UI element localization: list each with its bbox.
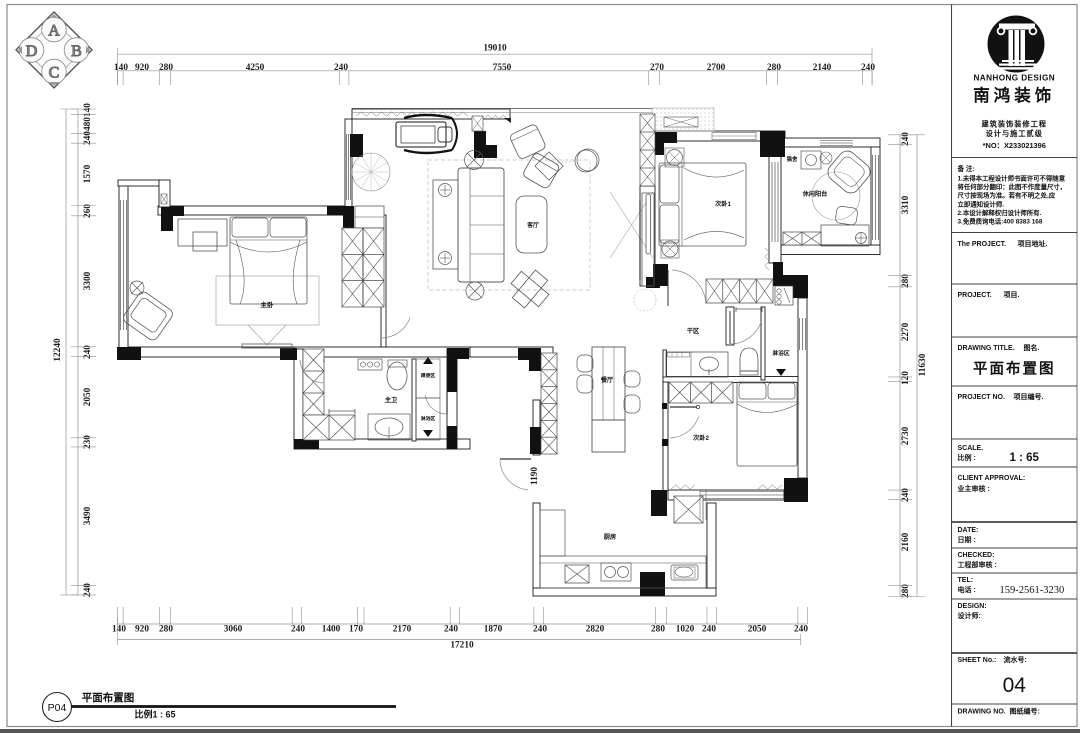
- svg-text:280: 280: [651, 625, 665, 635]
- svg-text:2820: 2820: [586, 625, 605, 635]
- svg-text:The PROJECT.: The PROJECT.: [958, 241, 1007, 248]
- svg-text:240: 240: [794, 625, 808, 635]
- svg-text:240: 240: [861, 63, 875, 73]
- svg-text:120: 120: [901, 371, 911, 385]
- svg-text:工程部审核 :: 工程部审核 :: [958, 560, 997, 569]
- svg-text:项目.: 项目.: [1004, 290, 1020, 299]
- svg-text:280: 280: [159, 63, 173, 73]
- svg-text:7550: 7550: [493, 63, 512, 73]
- svg-text:流水号:: 流水号:: [1004, 655, 1027, 664]
- svg-text:比例1 : 65: 比例1 : 65: [134, 709, 175, 720]
- svg-text:厨房: 厨房: [604, 533, 616, 541]
- svg-text:猫舍: 猫舍: [786, 155, 798, 163]
- svg-text:电话 :: 电话 :: [958, 585, 976, 594]
- svg-text:280: 280: [159, 625, 173, 635]
- svg-text:淋浴区: 淋浴区: [772, 349, 790, 357]
- svg-text:2.本设计解释权归设计师所有.: 2.本设计解释权归设计师所有.: [958, 208, 1042, 217]
- svg-text:比例 :: 比例 :: [958, 453, 976, 462]
- svg-text:1020: 1020: [676, 625, 695, 635]
- svg-text:11630: 11630: [918, 353, 928, 376]
- svg-text:159-2561-3230: 159-2561-3230: [1000, 585, 1065, 596]
- svg-text:240: 240: [444, 625, 458, 635]
- svg-text:客厅: 客厅: [526, 221, 539, 229]
- svg-text:次卧1: 次卧1: [715, 200, 731, 208]
- svg-text:业主审核 :: 业主审核 :: [958, 484, 990, 493]
- svg-text:PROJECT.: PROJECT.: [958, 292, 992, 299]
- svg-text:17210: 17210: [450, 641, 474, 651]
- svg-text:270: 270: [650, 63, 664, 73]
- svg-text:240: 240: [702, 625, 716, 635]
- svg-text:3060: 3060: [224, 625, 243, 635]
- svg-text:2160: 2160: [901, 532, 911, 551]
- svg-text:DATE:: DATE:: [958, 527, 979, 534]
- svg-text:次卧2: 次卧2: [693, 434, 709, 442]
- svg-text:建筑装饰装修工程: 建筑装饰装修工程: [981, 120, 1047, 129]
- svg-text:3310: 3310: [901, 195, 911, 214]
- svg-text:1190: 1190: [530, 467, 540, 485]
- svg-text:480: 480: [83, 117, 93, 131]
- svg-text:170: 170: [349, 625, 363, 635]
- svg-text:主卧: 主卧: [261, 300, 275, 309]
- svg-text:DRAWING TITLE.: DRAWING TITLE.: [958, 345, 1015, 352]
- svg-text:140: 140: [114, 63, 128, 73]
- svg-text:休闲阳台: 休闲阳台: [802, 190, 828, 198]
- svg-text:将任何部分翻印：此图不作度量尺寸，: 将任何部分翻印：此图不作度量尺寸，: [958, 182, 1067, 191]
- svg-text:平面布置图: 平面布置图: [82, 691, 135, 704]
- svg-text:1870: 1870: [484, 625, 503, 635]
- svg-text:备 注:: 备 注:: [957, 164, 975, 173]
- svg-text:2140: 2140: [813, 63, 832, 73]
- svg-text:240: 240: [83, 131, 93, 145]
- svg-text:B: B: [71, 43, 82, 60]
- svg-text:DESIGN:: DESIGN:: [958, 603, 987, 610]
- svg-text:12240: 12240: [53, 338, 63, 362]
- svg-text:240: 240: [533, 625, 547, 635]
- svg-text:280: 280: [767, 63, 781, 73]
- svg-text:项目编号.: 项目编号.: [1014, 392, 1044, 401]
- svg-text:*NO：X233021396: *NO：X233021396: [983, 141, 1046, 150]
- svg-text:140: 140: [112, 625, 126, 635]
- svg-text:2050: 2050: [83, 387, 93, 406]
- svg-text:240: 240: [291, 625, 305, 635]
- svg-text:蹲便区: 蹲便区: [421, 372, 436, 379]
- svg-text:SCALE.: SCALE.: [958, 445, 984, 452]
- svg-text:日期 :: 日期 :: [958, 535, 976, 544]
- svg-text:尺寸按现场为准。若有不明之处,应: 尺寸按现场为准。若有不明之处,应: [958, 191, 1056, 200]
- svg-text:2730: 2730: [901, 426, 911, 445]
- svg-text:南鸿装饰: 南鸿装饰: [973, 85, 1055, 105]
- svg-text:项目地址.: 项目地址.: [1018, 239, 1048, 248]
- svg-text:主卫: 主卫: [385, 396, 398, 404]
- svg-text:920: 920: [135, 625, 149, 635]
- svg-text:图纸编号:: 图纸编号:: [1010, 707, 1040, 716]
- svg-text:2170: 2170: [393, 625, 412, 635]
- svg-text:干区: 干区: [687, 327, 700, 335]
- svg-text:SHEET No.:: SHEET No.:: [958, 657, 997, 664]
- svg-text:淋浴区: 淋浴区: [421, 415, 436, 422]
- svg-text:3300: 3300: [83, 271, 93, 290]
- svg-text:04: 04: [1003, 674, 1027, 697]
- svg-text:1.未得本工程设计师书面许可不得随意: 1.未得本工程设计师书面许可不得随意: [958, 174, 1066, 183]
- svg-text:NANHONG DESIGN: NANHONG DESIGN: [973, 74, 1055, 83]
- svg-text:C: C: [49, 64, 60, 81]
- svg-text:280: 280: [901, 584, 911, 598]
- svg-text:2700: 2700: [707, 63, 726, 73]
- svg-text:PROJECT NO.: PROJECT NO.: [958, 394, 1006, 401]
- svg-text:设计师:: 设计师:: [958, 611, 981, 620]
- svg-text:3.免费质询电话:400 8383 168: 3.免费质询电话:400 8383 168: [958, 217, 1043, 226]
- svg-text:CLIENT APPROVAL:: CLIENT APPROVAL:: [958, 475, 1026, 482]
- svg-text:平面布置图: 平面布置图: [973, 360, 1056, 378]
- svg-text:DRAWING NO.: DRAWING NO.: [958, 709, 1006, 716]
- svg-text:图名.: 图名.: [1024, 343, 1040, 352]
- svg-text:240: 240: [901, 132, 911, 146]
- svg-text:3490: 3490: [83, 506, 93, 525]
- svg-text:CHECKED:: CHECKED:: [958, 552, 995, 559]
- svg-text:A: A: [48, 22, 60, 39]
- svg-text:P04: P04: [48, 702, 67, 714]
- svg-text:240: 240: [334, 63, 348, 73]
- svg-text:TEL:: TEL:: [958, 577, 974, 584]
- svg-text:立即通知设计师.: 立即通知设计师.: [958, 199, 1005, 208]
- svg-text:设计与施工贰级: 设计与施工贰级: [986, 129, 1043, 138]
- svg-text:4250: 4250: [246, 63, 265, 73]
- svg-text:920: 920: [135, 63, 149, 73]
- svg-text:餐厅: 餐厅: [601, 376, 614, 384]
- svg-text:2050: 2050: [748, 625, 767, 635]
- svg-text:2270: 2270: [901, 322, 911, 341]
- svg-text:1400: 1400: [322, 625, 341, 635]
- svg-text:D: D: [26, 43, 38, 60]
- svg-text:1570: 1570: [83, 164, 93, 183]
- svg-text:1 : 65: 1 : 65: [1010, 452, 1040, 464]
- svg-text:19010: 19010: [483, 44, 507, 54]
